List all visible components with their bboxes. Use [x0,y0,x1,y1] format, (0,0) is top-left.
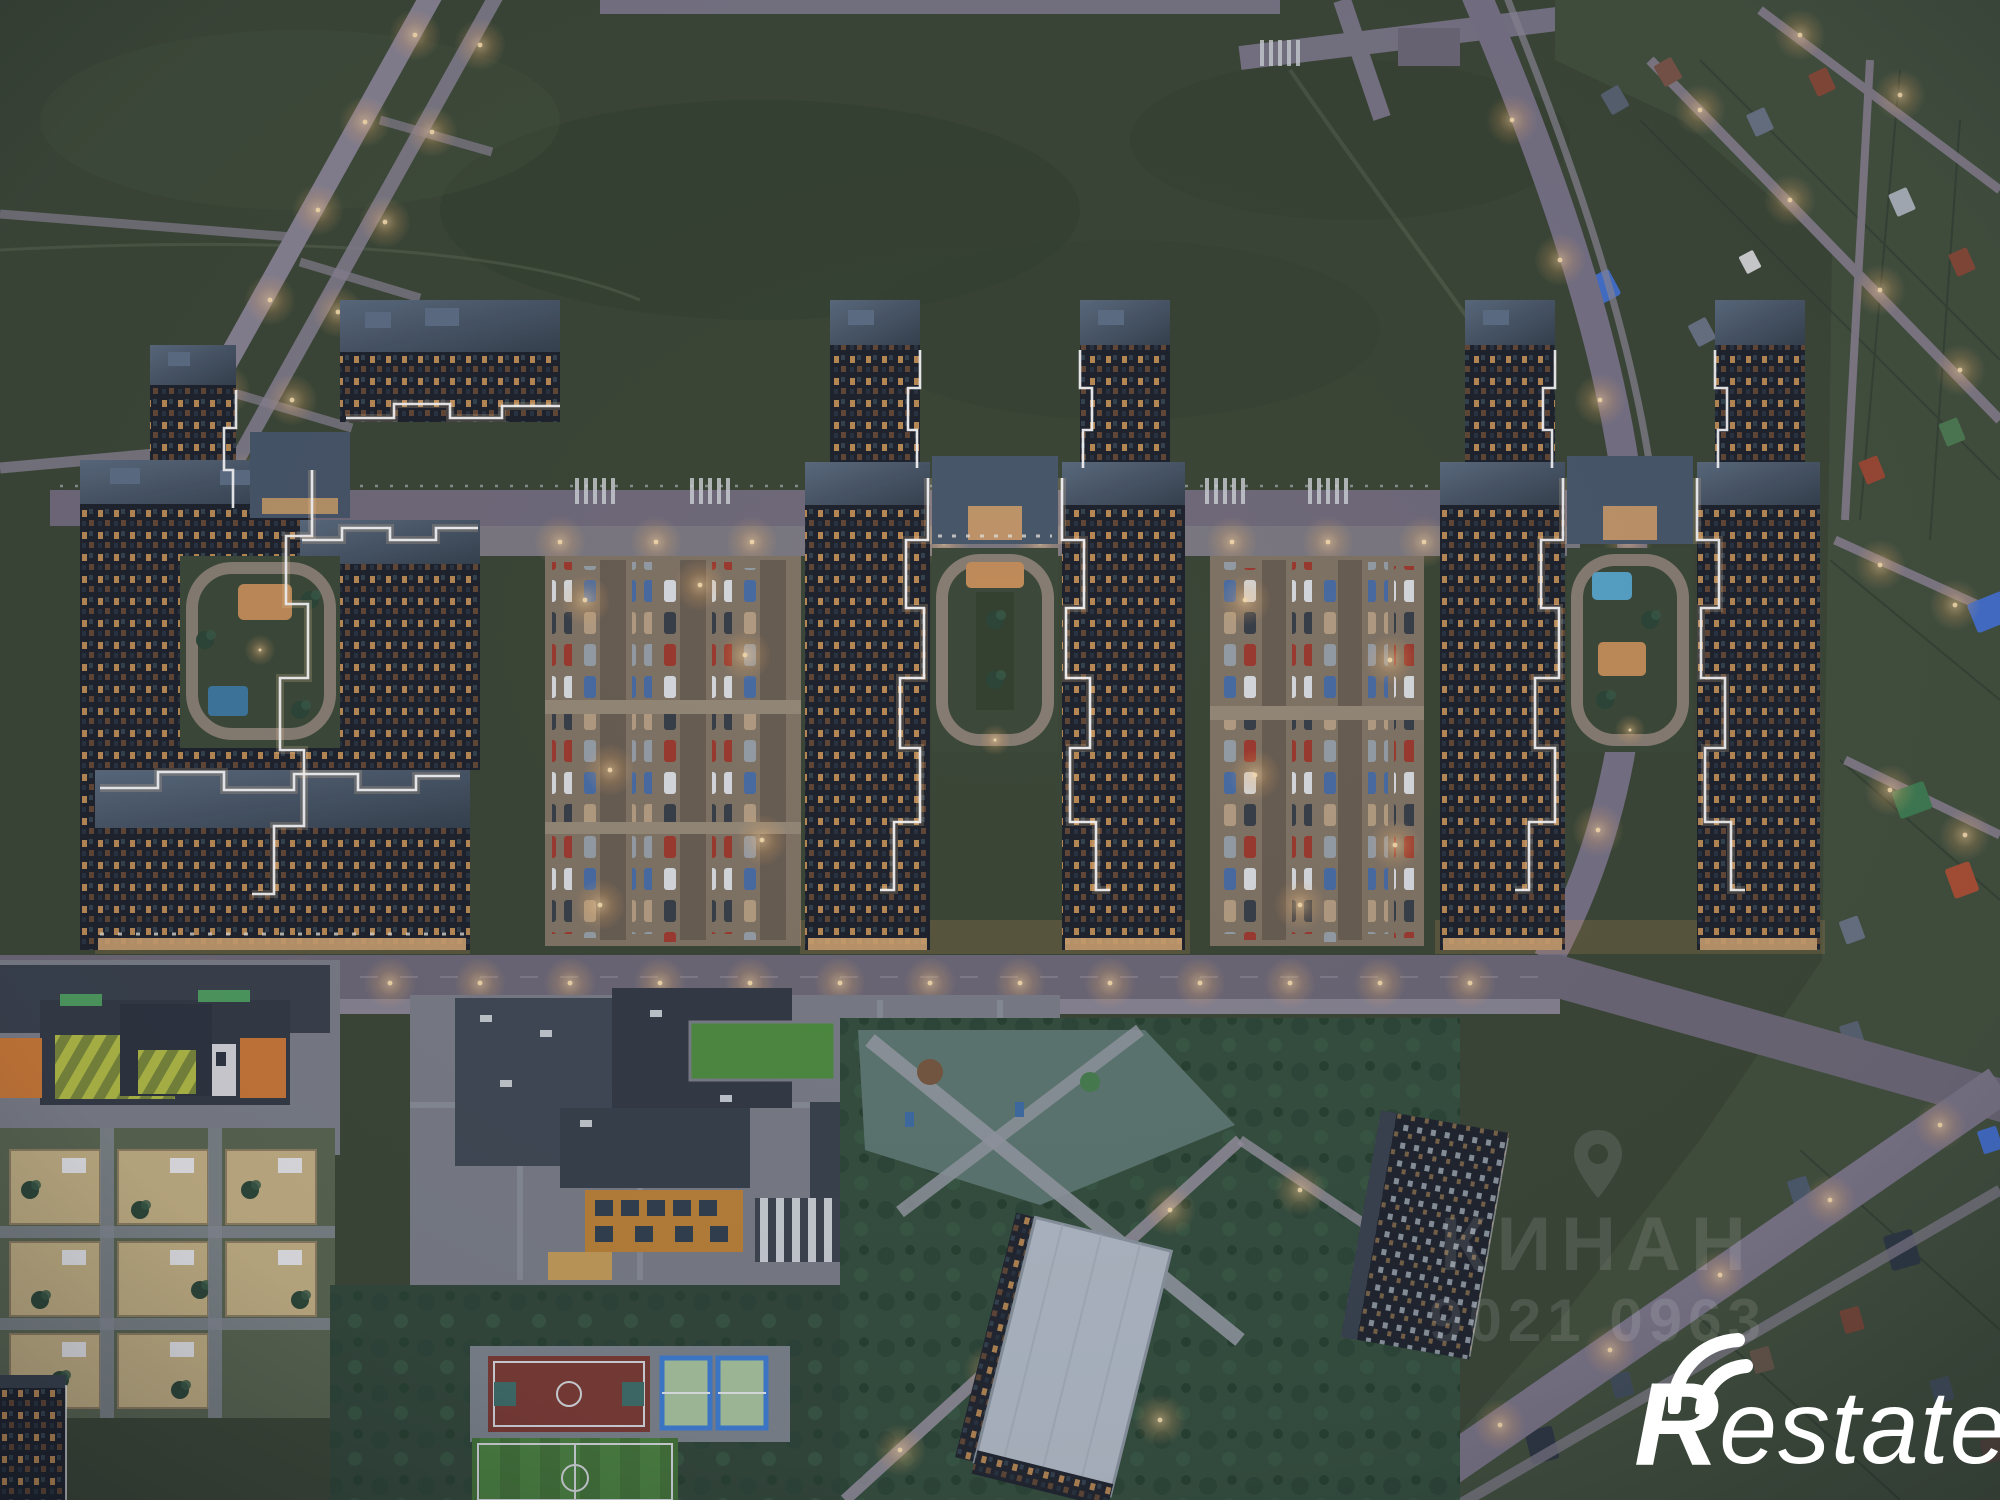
aerial-render: КИНАН 9021 0963 R estate [0,0,2000,1500]
restate-logo: R estate [1634,1372,2000,1478]
location-pin-icon [1571,1128,1625,1200]
signal-arcs-icon [1668,1328,1764,1414]
center-watermark: КИНАН 9021 0963 [1368,1128,1828,1357]
watermark-text: КИНАН [1368,1205,1828,1285]
